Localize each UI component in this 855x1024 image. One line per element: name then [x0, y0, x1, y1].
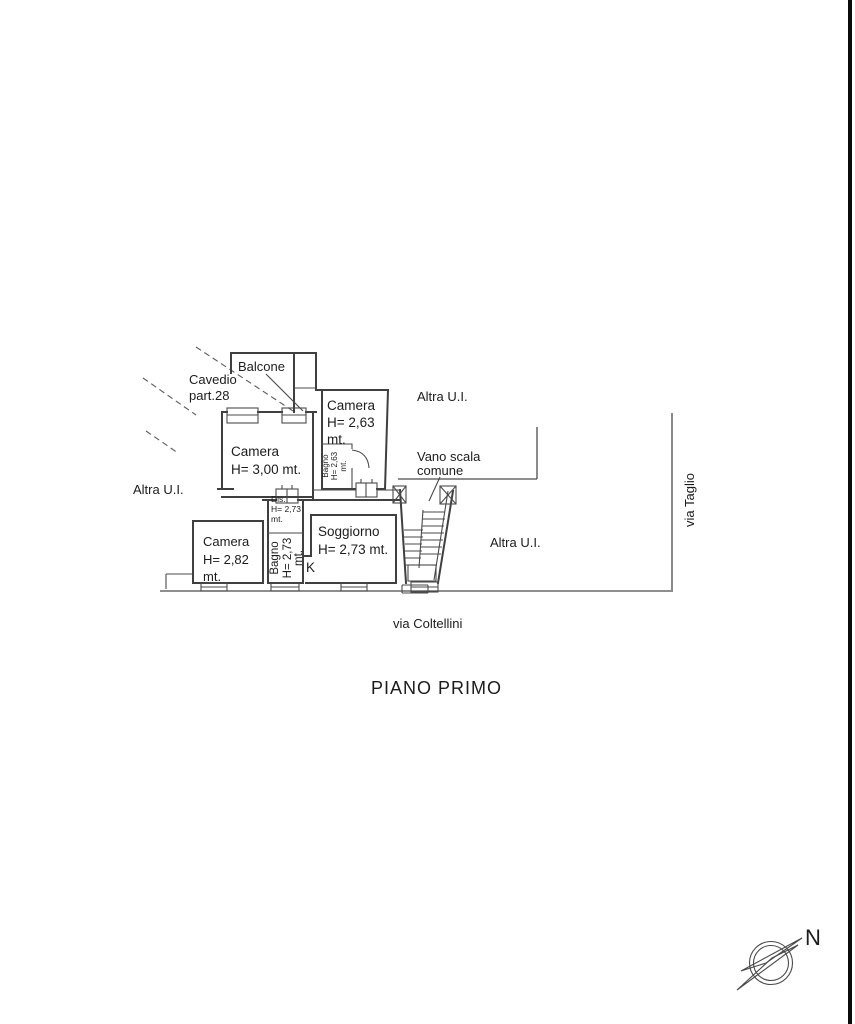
balcone-leader-line: [266, 374, 303, 411]
bagno-263-height: H= 2,63: [330, 451, 339, 480]
camera-263-name: Camera: [327, 398, 376, 413]
page-title: PIANO PRIMO: [371, 678, 502, 698]
stairwell: [393, 486, 456, 593]
camera-282-height: H= 2,82: [203, 552, 249, 567]
compass-needle-blade-1: [741, 938, 802, 971]
camera-282-unit: mt.: [203, 569, 221, 584]
camera-263-unit: mt.: [327, 432, 346, 447]
balcone-label: Balcone: [238, 359, 285, 374]
altra-ui-left-label: Altra U.I.: [133, 482, 184, 497]
bagno-273-name: Bagno: [269, 541, 281, 574]
compass-needle-blade-2: [737, 945, 798, 990]
bagno-263-name: Bagno: [321, 454, 330, 478]
camera-282-name: Camera: [203, 534, 250, 549]
bagno-273-unit: mt.: [293, 550, 305, 566]
dis-name: Dis.: [271, 494, 286, 504]
camera-300-height: H= 3,00 mt.: [231, 462, 301, 477]
dis-height: H= 2,73: [271, 504, 301, 514]
soggiorno-height: H= 2,73 mt.: [318, 542, 388, 557]
bagno-263-unit: mt.: [339, 460, 348, 471]
via-coltellini-street-label: via Coltellini: [393, 616, 462, 631]
leader-lines: [266, 374, 440, 501]
vano-scala-label-line1: Vano scala: [417, 449, 481, 464]
soggiorno-name: Soggiorno: [318, 524, 380, 539]
camera-300-name: Camera: [231, 444, 280, 459]
via-taglio-street-label: via Taglio: [682, 473, 697, 527]
bagno-263-label: Bagno H= 2,63 mt.: [321, 451, 348, 480]
vano-scala-leader-line: [429, 477, 440, 501]
cavedio-label-line1: Cavedio: [189, 372, 237, 387]
kitchen-label: K: [306, 560, 315, 575]
scan-edge-border: [848, 0, 852, 1024]
north-label: N: [805, 925, 821, 950]
cavedio-label-line2: part.28: [189, 388, 229, 403]
north-compass: N: [737, 925, 821, 990]
scanned-floor-plan-page: Balcone Cavedio part.28 Camera H= 2,63 m…: [0, 0, 855, 1024]
altra-ui-top-label: Altra U.I.: [417, 389, 468, 404]
vano-scala-label-line2: comune: [417, 463, 463, 478]
bagno-273-label: Bagno H= 2,73 mt.: [269, 538, 305, 579]
altra-ui-right-label: Altra U.I.: [490, 535, 541, 550]
dis-unit: mt.: [271, 514, 283, 524]
camera-263-height: H= 2,63: [327, 415, 375, 430]
floor-plan-drawing: Balcone Cavedio part.28 Camera H= 2,63 m…: [0, 0, 855, 1024]
